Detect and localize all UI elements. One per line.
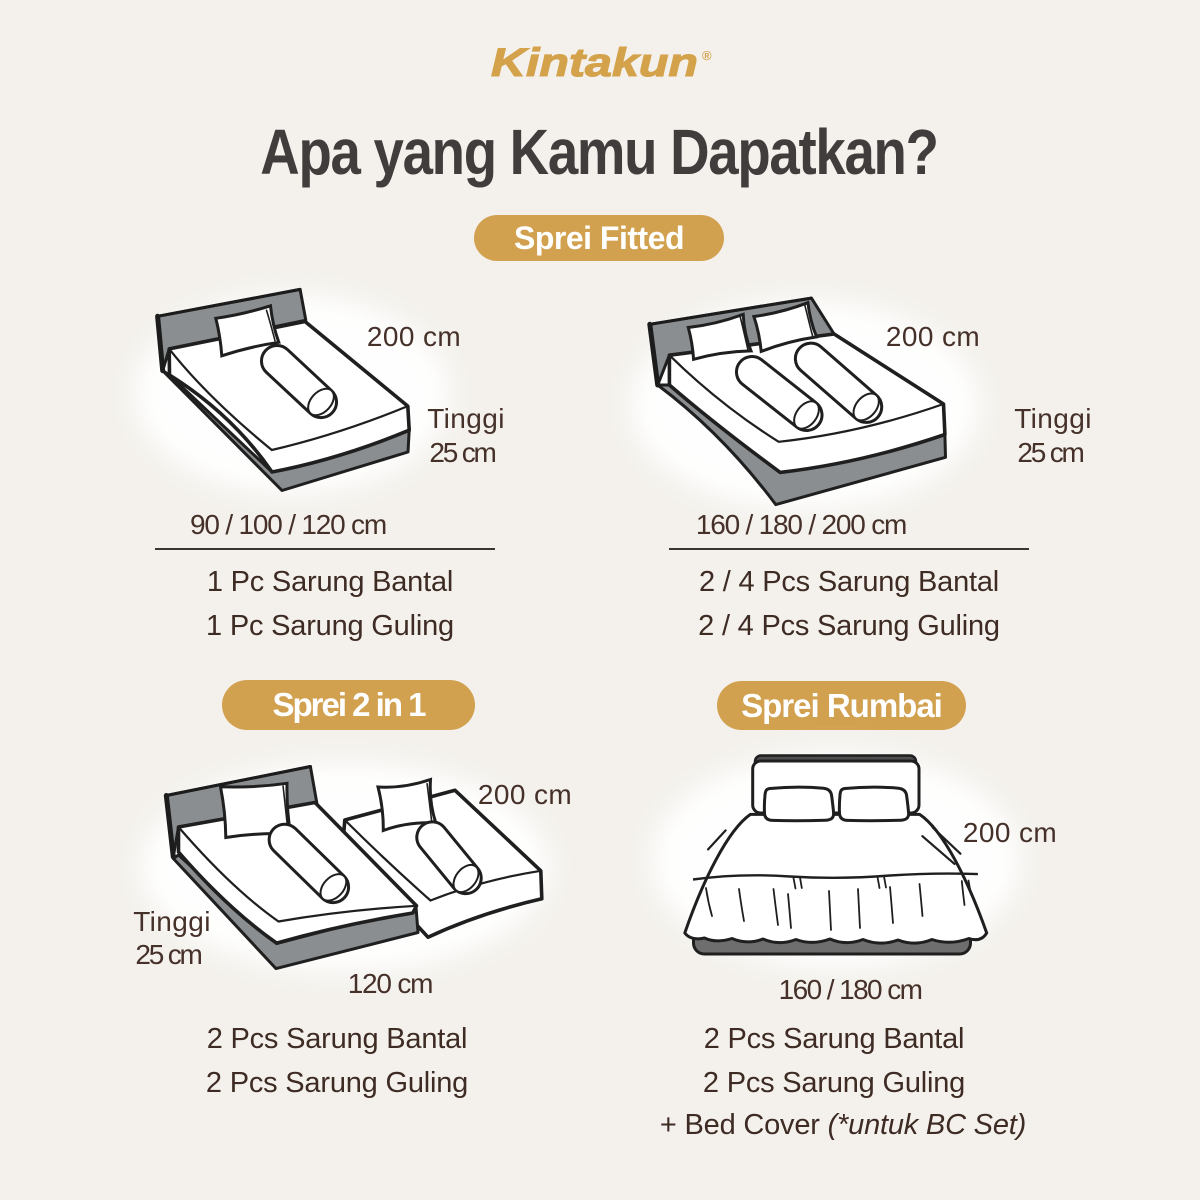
svg-text:®: ® [702, 48, 712, 63]
svg-text:Kintakun: Kintakun [491, 41, 698, 85]
